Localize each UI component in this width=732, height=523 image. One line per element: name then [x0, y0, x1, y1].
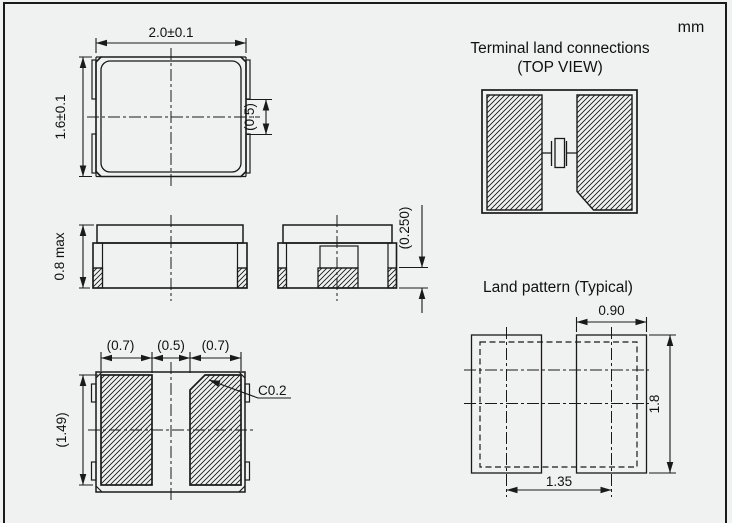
package-bottom-view: (0.7) (0.5) (0.7) (1.49) C0.2 [54, 338, 291, 502]
dimension-land-pitch: 1.35 [507, 474, 612, 490]
dim-width-label: 2.0±0.1 [149, 25, 194, 40]
terminal-land-subtitle: (TOP VIEW) [517, 59, 603, 76]
terminal-land-pad-right [577, 95, 632, 210]
body-side [93, 243, 247, 288]
lid-side [97, 225, 243, 243]
dim-land-height-label: 1.8 [647, 395, 662, 414]
dim-standoff-label: (0.250) [397, 207, 412, 250]
terminal-land-title: Terminal land connections [470, 40, 649, 57]
dim-pad-left-label: (0.7) [107, 338, 135, 353]
land-pattern-centerlines [464, 327, 649, 497]
dimension-max-height: 0.8 max [52, 225, 94, 288]
terminal-pad-end-left [278, 268, 287, 288]
engineering-drawing: mm 2.0±0.1 1.6±0.1 (0.5) [0, 0, 732, 523]
dimension-land-height: 1.8 [647, 335, 676, 473]
crystal-symbol [542, 139, 577, 168]
terminal-pad-end-right [388, 268, 397, 288]
package-front-view: 0.8 max [52, 215, 247, 301]
dim-pad-height-label: (1.49) [54, 412, 69, 447]
center-terminal-pad [318, 268, 358, 288]
terminal-land-pad-left [487, 95, 542, 210]
chamfer-label: C0.2 [258, 383, 287, 398]
package-top-view: 2.0±0.1 1.6±0.1 (0.5) [53, 25, 272, 186]
dim-gap-label: (0.5) [157, 338, 185, 353]
dimension-height: 1.6±0.1 [53, 57, 92, 177]
land-pattern: Land pattern (Typical) 0.90 1.8 1.35 [464, 279, 676, 497]
package-outline-dashed [480, 342, 637, 467]
dimension-standoff: (0.250) [397, 205, 428, 313]
dim-pad-right-label: (0.7) [202, 338, 230, 353]
dim-notch-label: (0.5) [242, 103, 257, 131]
terminal-land-connections: Terminal land connections (TOP VIEW) [470, 40, 649, 213]
dim-height-label: 1.6±0.1 [53, 95, 68, 140]
unit-label: mm [678, 19, 705, 36]
terminal-edges [93, 243, 247, 288]
land-pattern-title: Land pattern (Typical) [483, 279, 633, 296]
top-view-centerlines [87, 48, 260, 186]
dim-land-pitch-label: 1.35 [546, 474, 572, 489]
dim-max-height-label: 0.8 max [52, 232, 67, 280]
package-end-view: (0.250) [278, 205, 428, 313]
terminal-pad-left [93, 268, 103, 288]
terminal-pad-right [238, 268, 248, 288]
center-cavity [320, 246, 358, 268]
dim-land-width-label: 0.90 [598, 303, 624, 318]
datasheet-drawing-page: mm 2.0±0.1 1.6±0.1 (0.5) [0, 0, 732, 523]
